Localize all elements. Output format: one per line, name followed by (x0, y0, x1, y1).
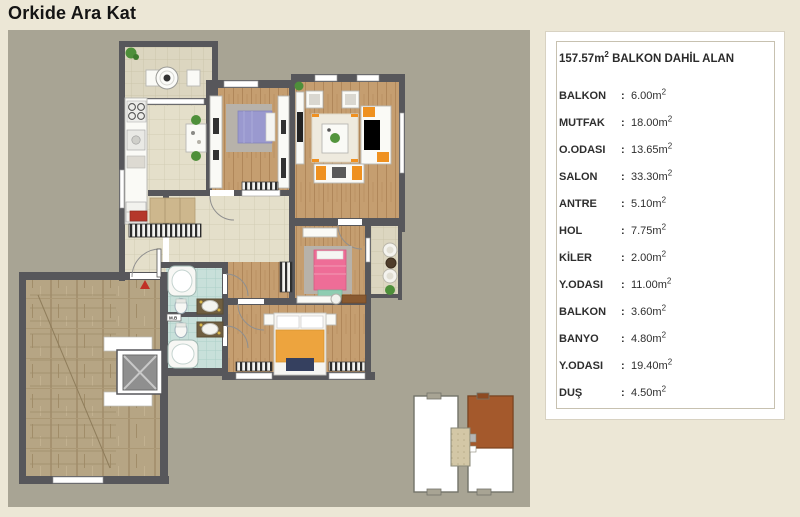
room-area: 6.00m2 (631, 90, 666, 102)
pillow (277, 316, 299, 328)
pillow (266, 113, 275, 141)
balcony-door (366, 238, 370, 262)
blanket (276, 330, 324, 362)
banyo-door-gap (223, 274, 227, 294)
room-area: 7.75m2 (631, 225, 666, 237)
room-area: 4.80m2 (631, 333, 666, 345)
wardrobe (210, 96, 222, 188)
washer-label: M.B (169, 316, 178, 321)
room-label: SALON (559, 171, 621, 183)
plant-icon (330, 133, 340, 143)
room-area: 4.50m2 (631, 387, 666, 399)
o-odasi-inner-window (242, 190, 280, 196)
room-area: 2.00m2 (631, 252, 666, 264)
antre-opening (163, 236, 169, 262)
kitchen-island (186, 124, 206, 152)
nightstand (264, 314, 274, 325)
room-label: BALKON (559, 90, 621, 102)
plant-icon (191, 151, 201, 161)
legend-row: KİLER:2.00m2 (559, 244, 772, 271)
tv (297, 112, 303, 142)
wardrobe (280, 262, 292, 292)
room-area: 11.00m2 (631, 279, 671, 291)
room-label: Y.ODASI (559, 360, 621, 372)
bigroom-window-2 (329, 373, 365, 379)
room-label: MUTFAK (559, 117, 621, 129)
legend-row: O.ODASI:13.65m2 (559, 136, 772, 163)
legend-row: Y.ODASI:19.40m2 (559, 352, 772, 379)
radiator (329, 362, 365, 371)
legend-row: Y.ODASI:11.00m2 (559, 271, 772, 298)
legend-row: ANTRE:5.10m2 (559, 190, 772, 217)
salon-door-gap (338, 219, 362, 225)
room-area: 13.65m2 (631, 144, 672, 156)
serving-window (146, 99, 204, 104)
room-label: ANTRE (559, 198, 621, 210)
bed-bench (286, 358, 314, 371)
bigroom-window-1 (236, 373, 272, 379)
legend-row: HOL:7.75m2 (559, 217, 772, 244)
o-odasi-door-gap (210, 190, 234, 196)
entrance-gap (130, 273, 160, 279)
room-label: BANYO (559, 333, 621, 345)
room-area: 5.10m2 (631, 198, 666, 210)
room-area: 19.40m2 (631, 360, 672, 372)
nightstand (326, 314, 336, 325)
room-area: 3.60m2 (631, 306, 666, 318)
entrance-mat (129, 224, 201, 237)
stairwell-window (53, 477, 103, 483)
legend-row: BANYO:4.80m2 (559, 325, 772, 352)
room-label: KİLER (559, 252, 621, 264)
legend-rows: BALKON:6.00m2 MUTFAK:18.00m2 O.ODASI:13.… (559, 82, 772, 406)
page-title: Orkide Ara Kat (8, 3, 136, 24)
chair (331, 294, 341, 304)
bigroom-door-gap (238, 299, 264, 304)
salon-window-2 (357, 75, 379, 81)
pillow (317, 251, 343, 259)
legend-row: BALKON:6.00m2 (559, 82, 772, 109)
room-label: DUŞ (559, 387, 621, 399)
pillow (301, 316, 323, 328)
desk-wood (342, 295, 366, 303)
entrance-door (157, 249, 161, 277)
chair (187, 70, 200, 86)
page: M.B (0, 0, 800, 517)
door-mat-red (130, 211, 147, 221)
plant-icon (191, 115, 201, 125)
radiator (242, 182, 278, 190)
key-plan-core (451, 428, 470, 466)
legend-header: 157.57m2 BALKON DAHİL ALAN (559, 53, 734, 65)
room-area: 18.00m2 (631, 117, 672, 129)
kiler-cabinet (150, 198, 195, 223)
round-table (386, 258, 396, 268)
legend-row: SALON:33.30m2 (559, 163, 772, 190)
plant-icon (295, 82, 304, 91)
room-label: BALKON (559, 306, 621, 318)
radiator (236, 362, 272, 371)
kitchen-window (120, 170, 124, 208)
salon-window-1 (315, 75, 337, 81)
room-label: HOL (559, 225, 621, 237)
room-label: Y.ODASI (559, 279, 621, 291)
dus-door-gap (223, 326, 227, 346)
salon-window-right (400, 113, 404, 173)
legend-row: BALKON:3.60m2 (559, 298, 772, 325)
plant-icon (385, 285, 395, 295)
room-label: O.ODASI (559, 144, 621, 156)
legend-row: MUTFAK:18.00m2 (559, 109, 772, 136)
elevator-lobby (104, 337, 152, 351)
o-odasi-window (224, 81, 258, 87)
room-area: 33.30m2 (631, 171, 672, 183)
area-legend-panel: 157.57m2 BALKON DAHİL ALAN BALKON:6.00m2… (545, 31, 785, 420)
legend-row: DUŞ:4.50m2 (559, 379, 772, 406)
dresser (303, 228, 337, 237)
